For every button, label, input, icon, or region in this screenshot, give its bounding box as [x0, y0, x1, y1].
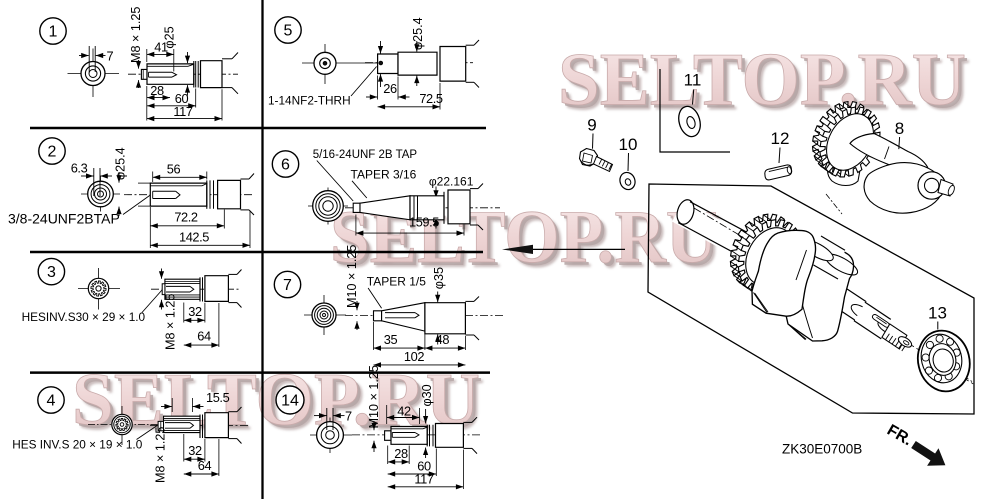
svg-text:117: 117: [414, 472, 433, 487]
svg-text:11: 11: [684, 71, 702, 90]
svg-text:φ35: φ35: [432, 267, 446, 289]
svg-text:1-14NF2-THRH: 1-14NF2-THRH: [268, 94, 351, 108]
svg-text:42: 42: [397, 404, 411, 419]
svg-text:ZK30E0700B: ZK30E0700B: [782, 441, 862, 456]
svg-text:8: 8: [895, 119, 904, 138]
svg-text:41: 41: [154, 40, 168, 55]
svg-text:7: 7: [345, 408, 352, 423]
svg-text:28: 28: [150, 83, 164, 98]
svg-text:10: 10: [619, 135, 638, 154]
svg-text:SELTOP.RU: SELTOP.RU: [558, 39, 966, 122]
svg-text:117: 117: [173, 104, 192, 119]
svg-text:4: 4: [47, 393, 56, 410]
svg-text:15.5: 15.5: [206, 390, 230, 405]
svg-text:6: 6: [281, 157, 290, 174]
svg-text:5/16-24UNF 2B TAP: 5/16-24UNF 2B TAP: [313, 149, 418, 161]
svg-text:28: 28: [394, 446, 408, 461]
svg-text:159.5: 159.5: [409, 215, 439, 230]
svg-text:72.5: 72.5: [419, 91, 443, 106]
svg-text:35: 35: [384, 332, 398, 347]
svg-text:3/8-24UNF2BTAP: 3/8-24UNF2BTAP: [8, 210, 120, 226]
svg-text:64: 64: [197, 329, 211, 344]
svg-text:φ30: φ30: [420, 384, 434, 406]
svg-text:6.3: 6.3: [71, 161, 88, 176]
svg-text:9: 9: [587, 116, 596, 135]
svg-text:56: 56: [167, 162, 181, 177]
svg-text:7: 7: [106, 48, 113, 63]
svg-text:TAPER 1/5: TAPER 1/5: [367, 275, 426, 289]
svg-text:142.5: 142.5: [179, 230, 209, 245]
svg-text:102: 102: [404, 349, 424, 364]
svg-text:HES INV.S 20 × 19 × 1.0: HES INV.S 20 × 19 × 1.0: [12, 437, 143, 451]
svg-text:7: 7: [283, 277, 292, 294]
svg-text:TAPER 3/16: TAPER 3/16: [351, 167, 417, 181]
svg-text:M10 × 1.25: M10 × 1.25: [367, 365, 381, 428]
svg-text:48: 48: [436, 332, 450, 347]
svg-text:12: 12: [771, 129, 790, 148]
svg-text:3: 3: [47, 264, 56, 281]
svg-text:72.2: 72.2: [174, 210, 198, 225]
svg-text:14: 14: [281, 393, 299, 410]
svg-text:32: 32: [188, 304, 202, 319]
svg-text:M8 × 1.25: M8 × 1.25: [129, 7, 143, 63]
svg-text:M8 × 1.25: M8 × 1.25: [154, 427, 168, 483]
svg-text:M8 × 1.25: M8 × 1.25: [164, 294, 178, 350]
svg-text:13: 13: [928, 304, 947, 323]
svg-text:64: 64: [198, 458, 212, 473]
svg-text:26: 26: [383, 81, 397, 96]
svg-text:HESINV.S30 × 29 × 1.0: HESINV.S30 × 29 × 1.0: [22, 310, 146, 324]
svg-text:φ22.161: φ22.161: [429, 174, 474, 188]
svg-text:φ25.4: φ25.4: [114, 147, 128, 180]
svg-text:32: 32: [188, 443, 202, 458]
svg-text:2: 2: [48, 144, 57, 161]
svg-text:M10 × 1.25: M10 × 1.25: [345, 245, 359, 308]
svg-text:1: 1: [49, 24, 58, 41]
svg-text:5: 5: [284, 23, 293, 40]
